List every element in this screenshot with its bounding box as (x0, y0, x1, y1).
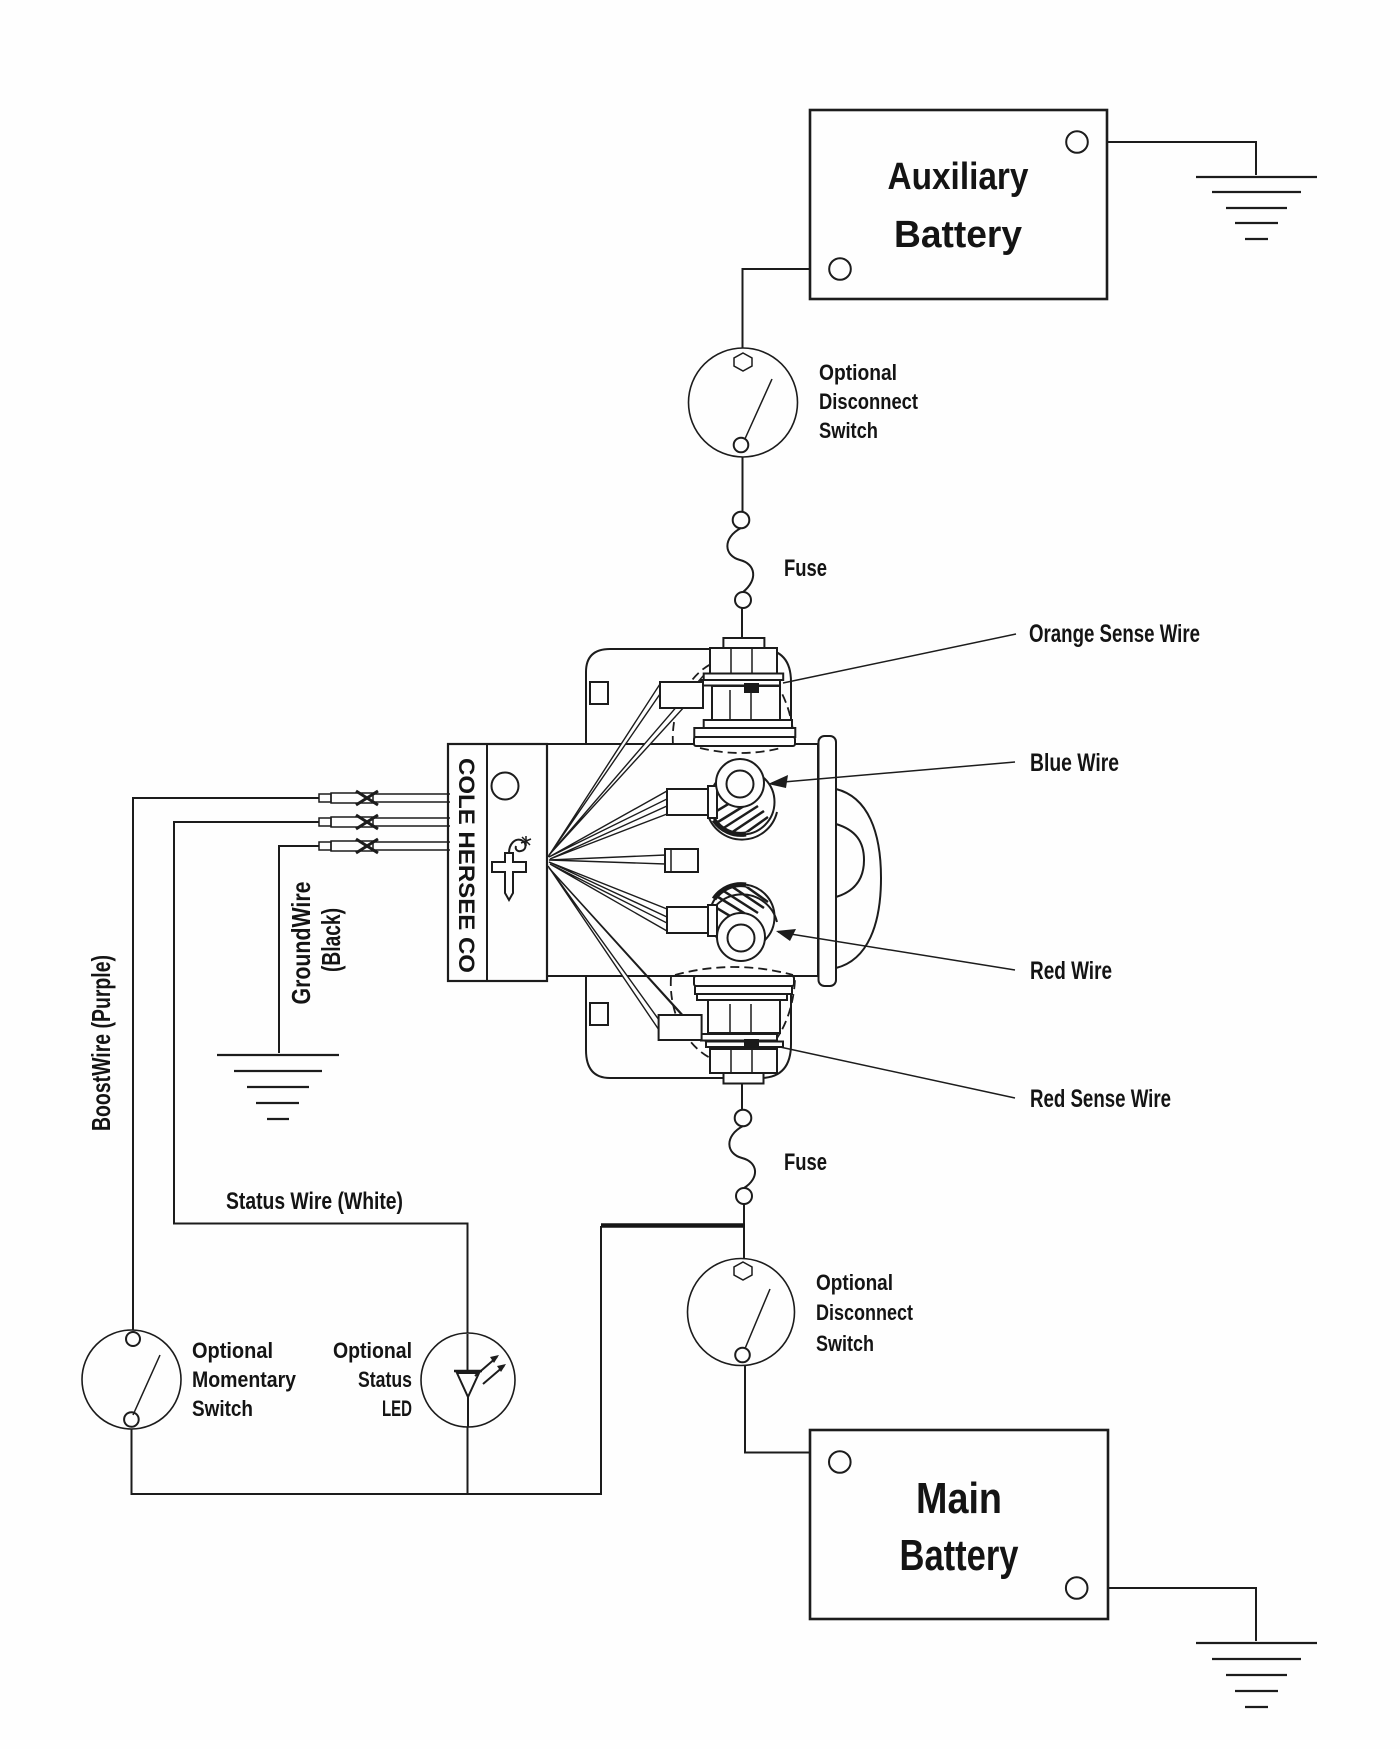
svg-text:Blue Wire: Blue Wire (1030, 749, 1119, 777)
svg-text:Switch: Switch (819, 418, 878, 443)
svg-text:Red Wire: Red Wire (1030, 957, 1112, 985)
svg-text:GroundWire: GroundWire (286, 882, 316, 1005)
svg-text:Battery: Battery (900, 1531, 1019, 1580)
svg-text:Disconnect: Disconnect (816, 1300, 914, 1325)
svg-text:Switch: Switch (192, 1396, 253, 1421)
svg-text:Status: Status (358, 1367, 412, 1392)
svg-text:Auxiliary: Auxiliary (888, 156, 1029, 198)
svg-text:Red Sense Wire: Red Sense Wire (1030, 1085, 1171, 1113)
svg-text:Optional: Optional (192, 1338, 273, 1363)
svg-text:Momentary: Momentary (192, 1367, 297, 1392)
svg-text:Optional: Optional (816, 1270, 893, 1295)
svg-text:COLE HERSEE CO: COLE HERSEE CO (454, 758, 479, 973)
svg-text:Orange Sense Wire: Orange Sense Wire (1029, 620, 1200, 648)
svg-text:Battery: Battery (894, 214, 1022, 256)
svg-text:Optional: Optional (333, 1338, 412, 1363)
svg-text:Fuse: Fuse (784, 555, 827, 582)
svg-text:Disconnect: Disconnect (819, 389, 919, 414)
svg-text:Main: Main (916, 1474, 1002, 1523)
svg-text:BoostWire (Purple): BoostWire (Purple) (86, 955, 116, 1131)
svg-text:Optional: Optional (819, 360, 897, 385)
svg-text:Switch: Switch (816, 1331, 874, 1356)
svg-text:LED: LED (382, 1396, 412, 1421)
svg-text:Status Wire (White): Status Wire (White) (226, 1188, 403, 1215)
svg-text:(Black): (Black) (316, 908, 346, 972)
svg-text:Fuse: Fuse (784, 1149, 827, 1176)
